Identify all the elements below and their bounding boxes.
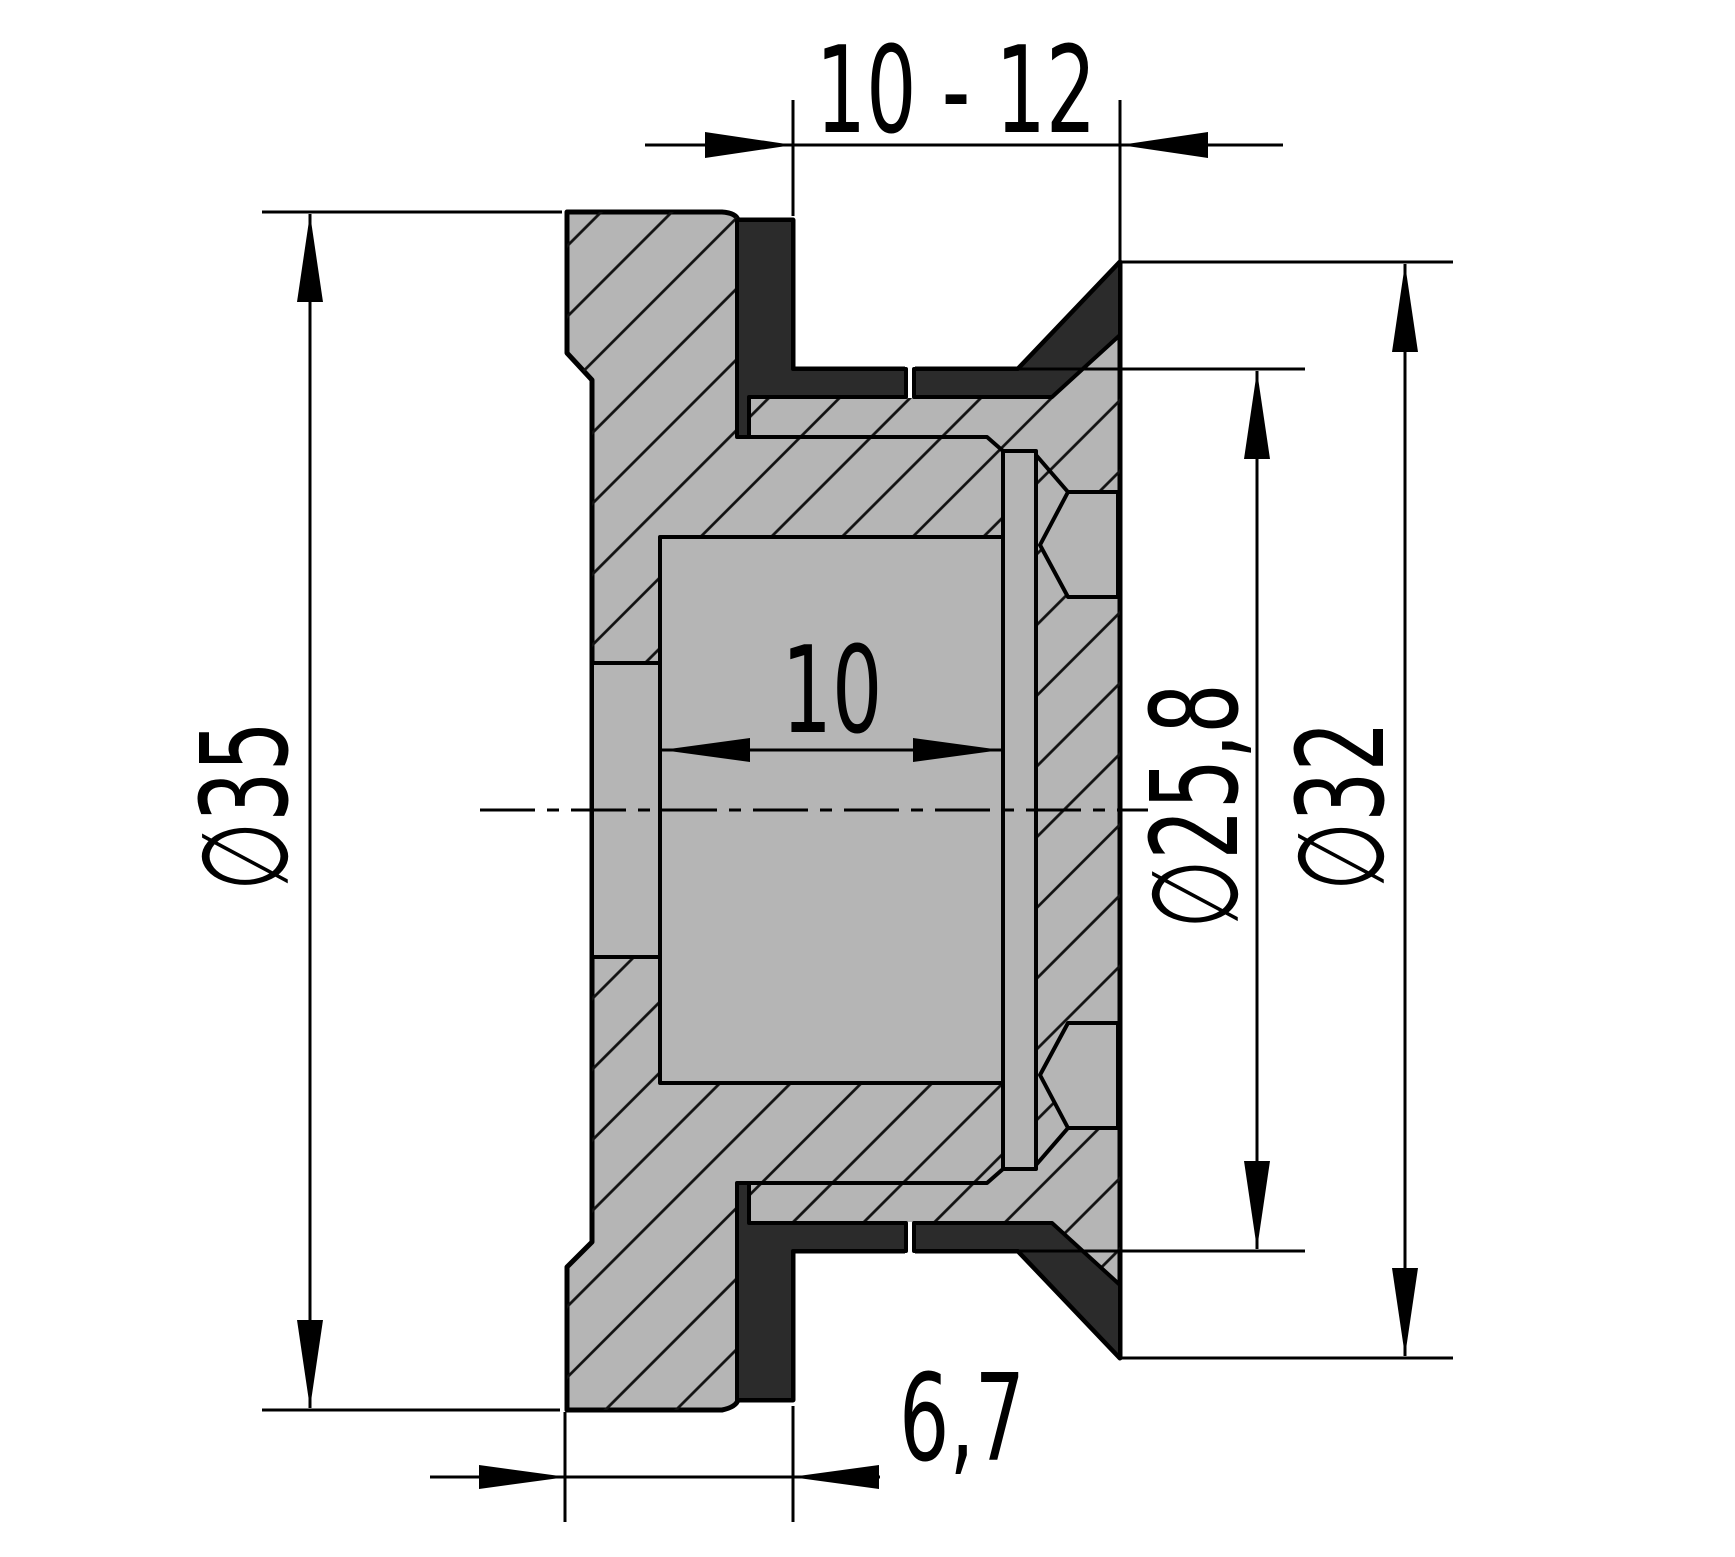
drawing-canvas: 10 - 12 ∅35 10 6,7 ∅25,8 ∅32 [0,0,1735,1557]
arrow [1392,264,1418,352]
arrow [705,132,793,158]
arrow [1120,132,1208,158]
arrow [1244,1161,1270,1249]
arrow [479,1465,567,1489]
label-bore-length: 10 [782,621,883,760]
arrow [1244,371,1270,459]
label-panel-thickness: 10 - 12 [816,21,1096,160]
arrow [1392,1268,1418,1356]
arrow [791,1465,879,1489]
section-drawing: 10 - 12 ∅35 10 6,7 ∅25,8 ∅32 [0,0,1735,1557]
label-neck-diameter: ∅25,8 [1126,683,1265,928]
label-flange-diameter: ∅35 [176,721,315,891]
dim-flange-stack [430,1406,880,1522]
arrow [297,1320,323,1408]
label-cone-diameter: ∅32 [1272,721,1411,891]
arrow [297,214,323,302]
label-flange-stack: 6,7 [899,1349,1025,1488]
